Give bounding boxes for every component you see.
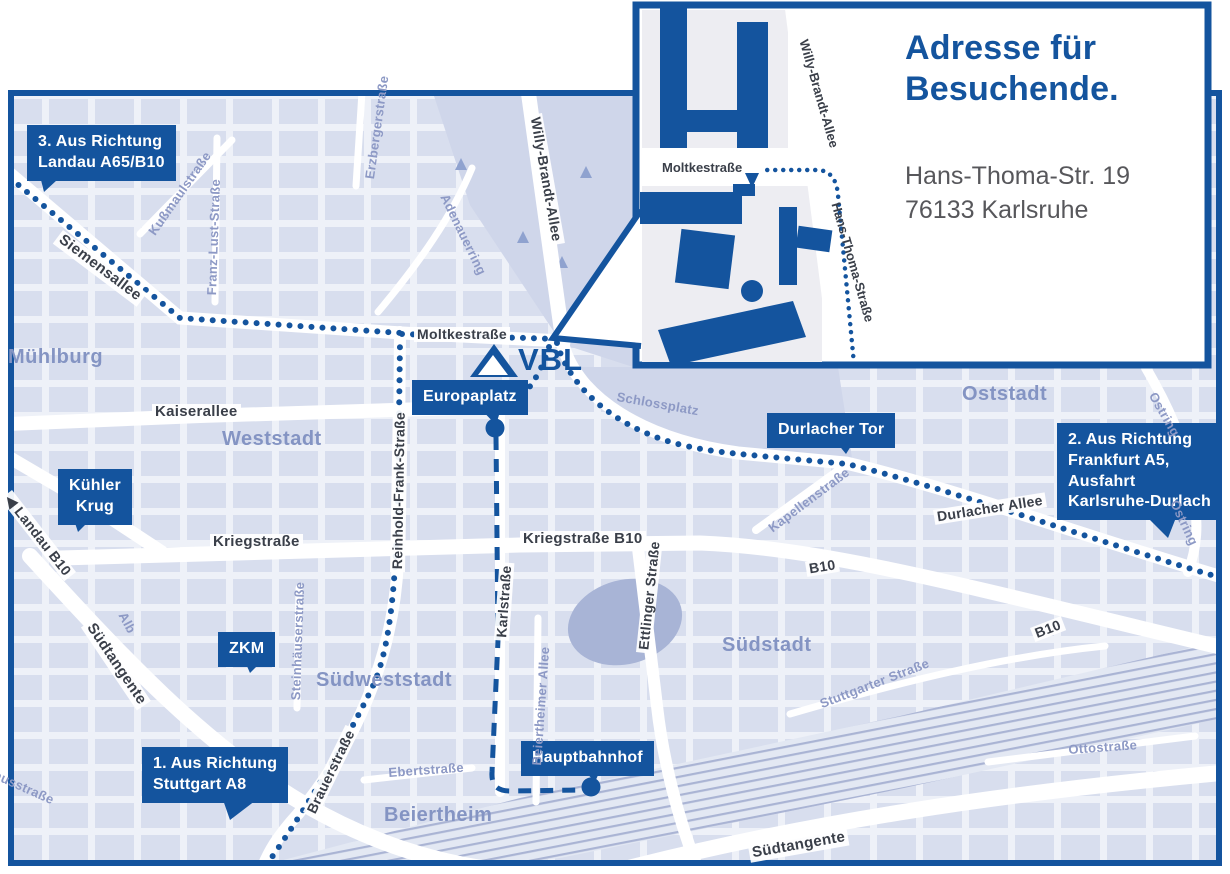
callout-zkm: ZKM	[218, 632, 275, 667]
district-label-suedweststadt: Südweststadt	[316, 669, 452, 691]
district-label-oststadt: Oststadt	[962, 383, 1047, 405]
district-label-suedstadt: Südstadt	[722, 634, 812, 656]
street-label-kaiserallee: Kaiserallee	[152, 404, 241, 421]
vbl-logo-text: VBL	[518, 343, 583, 377]
street-label-kriegstrasse-b10: Kriegstraße B10	[520, 531, 646, 548]
district-label-muehlburg: Mühlburg	[8, 346, 103, 368]
district-label-beiertheim: Beiertheim	[384, 804, 492, 826]
callout-europaplatz: Europaplatz	[412, 380, 528, 415]
callout-durlacher-tor: Durlacher Tor	[767, 413, 895, 448]
inset-address: Hans-Thoma-Str. 19 76133 Karlsruhe	[905, 160, 1130, 228]
inset-title: Adresse für Besuchende.	[905, 28, 1119, 111]
inset-street-label-moltkestrasse: Moltkestraße	[662, 161, 742, 175]
hauptbahnhof-marker	[582, 778, 601, 797]
street-label-moltkestrasse: Moltkestraße	[414, 327, 510, 342]
district-label-weststadt: Weststadt	[222, 428, 322, 450]
callout-kuehler-krug: Kühler Krug	[58, 469, 132, 525]
street-label-kriegstrasse: Kriegstraße	[210, 534, 303, 551]
street-label-reinhold-frank-strasse: Reinhold-Frank-Straße	[390, 409, 408, 572]
callout-route-2: 2. Aus Richtung Frankfurt A5, Ausfahrt K…	[1057, 423, 1222, 520]
callout-route-3: 3. Aus Richtung Landau A65/B10	[27, 125, 176, 181]
callout-route-1: 1. Aus Richtung Stuttgart A8	[142, 747, 288, 803]
